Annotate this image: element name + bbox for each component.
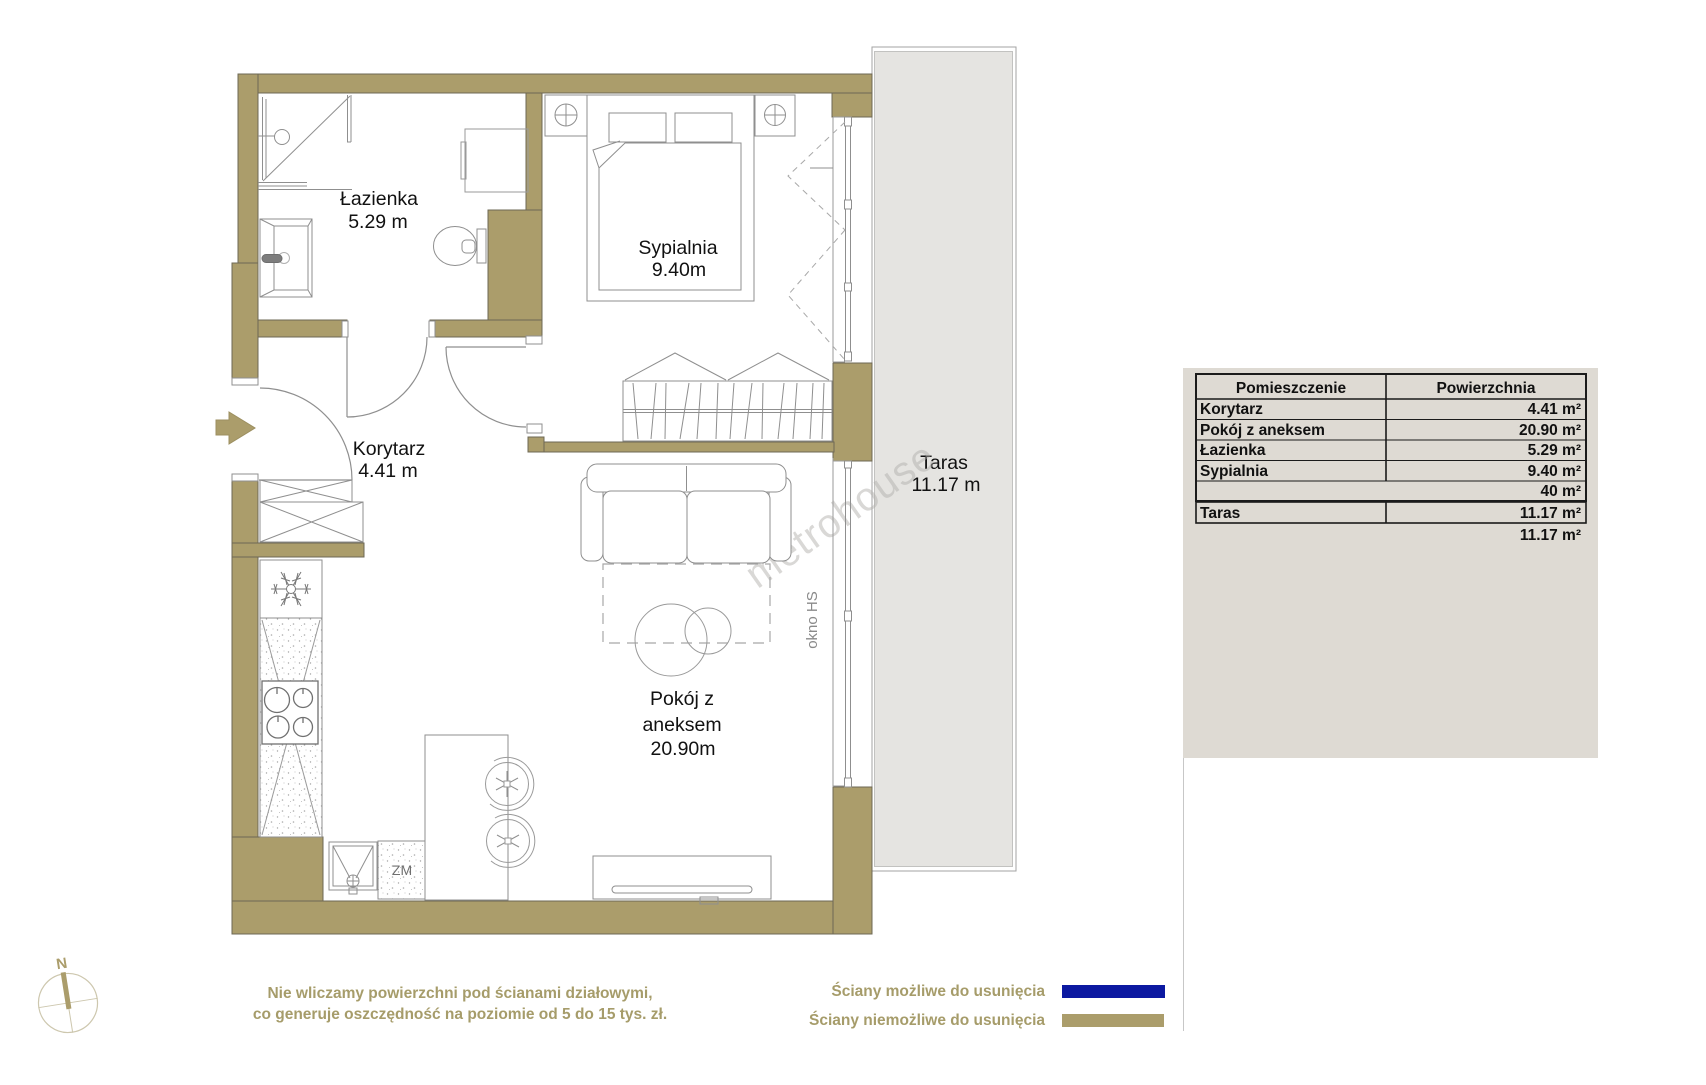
svg-text:40 m²: 40 m² <box>1541 483 1582 500</box>
svg-text:Ściany możliwe do usunięcia: Ściany możliwe do usunięcia <box>831 982 1045 1000</box>
svg-text:4.41 m: 4.41 m <box>358 460 418 482</box>
svg-text:Pokój z: Pokój z <box>650 688 714 710</box>
svg-text:Korytarz: Korytarz <box>353 438 426 460</box>
svg-text:Łazienka: Łazienka <box>1200 442 1266 459</box>
svg-text:aneksem: aneksem <box>642 714 721 736</box>
svg-text:Ściany niemożliwe do usunięcia: Ściany niemożliwe do usunięcia <box>809 1011 1045 1029</box>
svg-text:Pokój z aneksem: Pokój z aneksem <box>1200 422 1325 439</box>
svg-text:Łazienka: Łazienka <box>340 188 418 210</box>
svg-text:9.40 m²: 9.40 m² <box>1528 463 1581 480</box>
svg-text:5.29 m: 5.29 m <box>348 211 408 233</box>
svg-text:20.90m: 20.90m <box>650 738 715 760</box>
svg-text:ZM: ZM <box>392 862 412 878</box>
svg-text:co generuje oszczędność na poz: co generuje oszczędność na poziomie od 5… <box>253 1006 667 1023</box>
svg-text:Nie wliczamy powierzchni pod ś: Nie wliczamy powierzchni pod ścianami dz… <box>267 985 652 1002</box>
svg-text:5.29 m²: 5.29 m² <box>1528 442 1581 459</box>
svg-text:11.17 m²: 11.17 m² <box>1520 505 1581 522</box>
svg-text:20.90 m²: 20.90 m² <box>1519 422 1581 439</box>
svg-text:okno HS: okno HS <box>804 591 821 649</box>
svg-text:Sypialnia: Sypialnia <box>638 237 717 259</box>
svg-text:Pomieszczenie: Pomieszczenie <box>1236 380 1347 397</box>
svg-text:Powierzchnia: Powierzchnia <box>1436 380 1535 397</box>
svg-text:Korytarz: Korytarz <box>1200 401 1263 418</box>
svg-text:9.40m: 9.40m <box>652 259 706 281</box>
svg-text:Sypialnia: Sypialnia <box>1200 463 1268 480</box>
svg-text:Taras: Taras <box>1200 505 1240 522</box>
svg-text:4.41 m²: 4.41 m² <box>1528 401 1581 418</box>
svg-text:11.17 m²: 11.17 m² <box>1520 527 1581 544</box>
